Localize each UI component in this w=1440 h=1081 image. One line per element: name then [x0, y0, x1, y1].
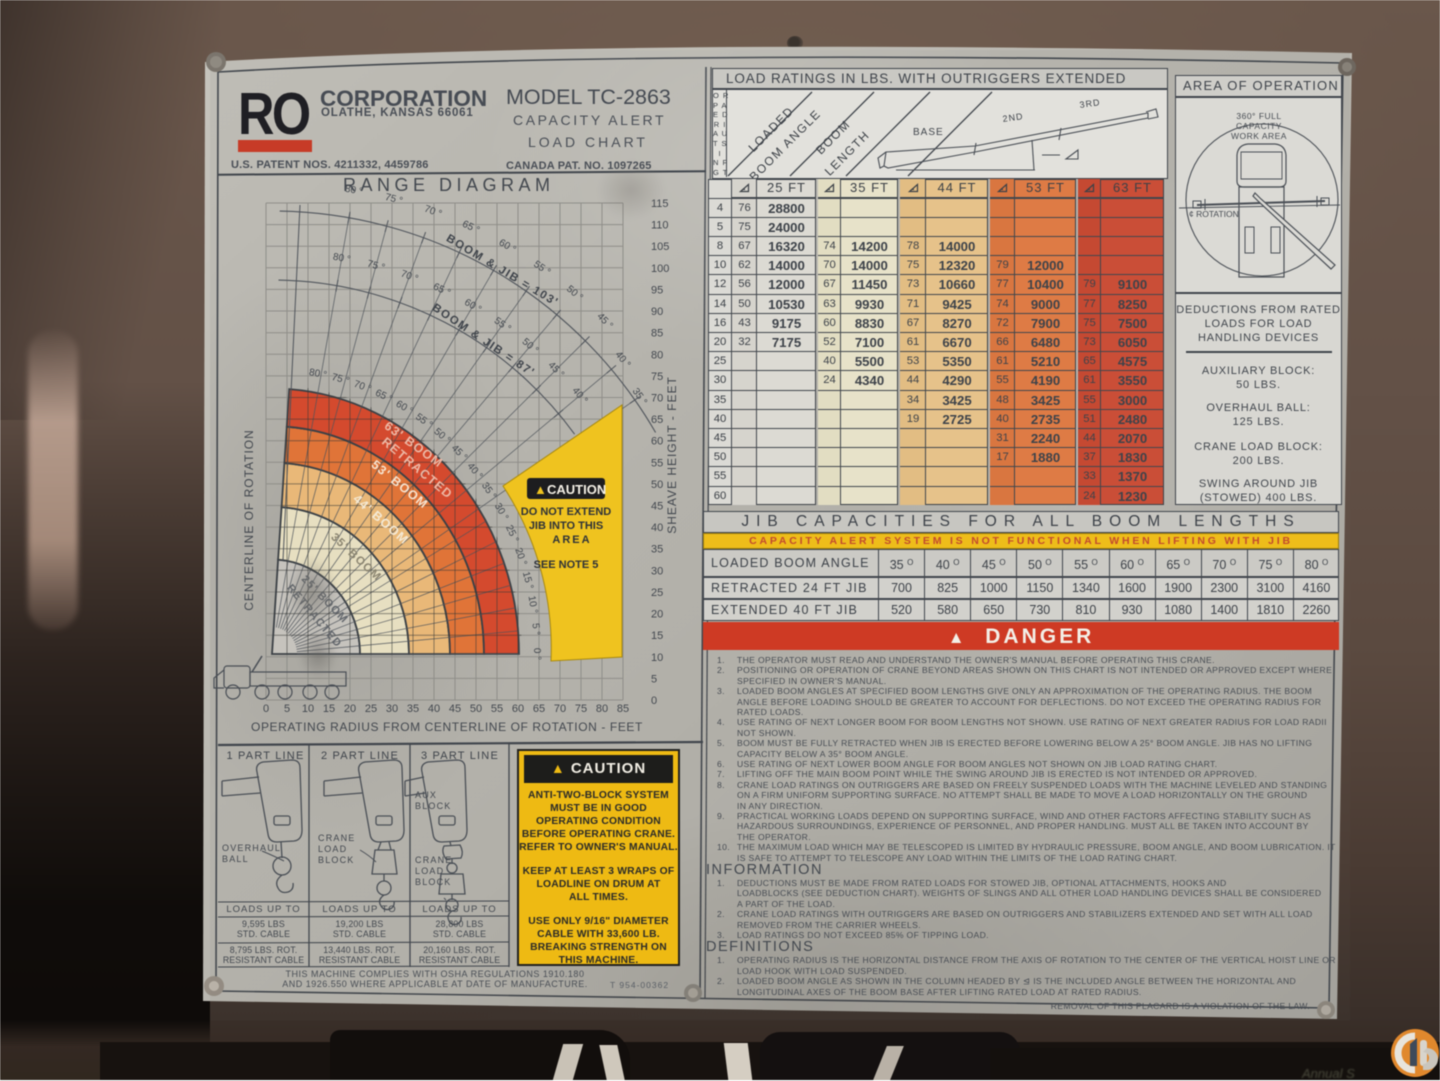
svg-text:360° FULL: 360° FULL [1236, 111, 1281, 121]
svg-text:CAPACITY: CAPACITY [1236, 121, 1282, 131]
svg-text:2ND: 2ND [1002, 111, 1024, 124]
svg-text:¢ ROTATION: ¢ ROTATION [1189, 209, 1239, 219]
svg-text:WORK AREA: WORK AREA [1231, 131, 1287, 141]
svg-text:3RD: 3RD [1079, 97, 1101, 110]
svg-text:BASE: BASE [913, 127, 944, 138]
